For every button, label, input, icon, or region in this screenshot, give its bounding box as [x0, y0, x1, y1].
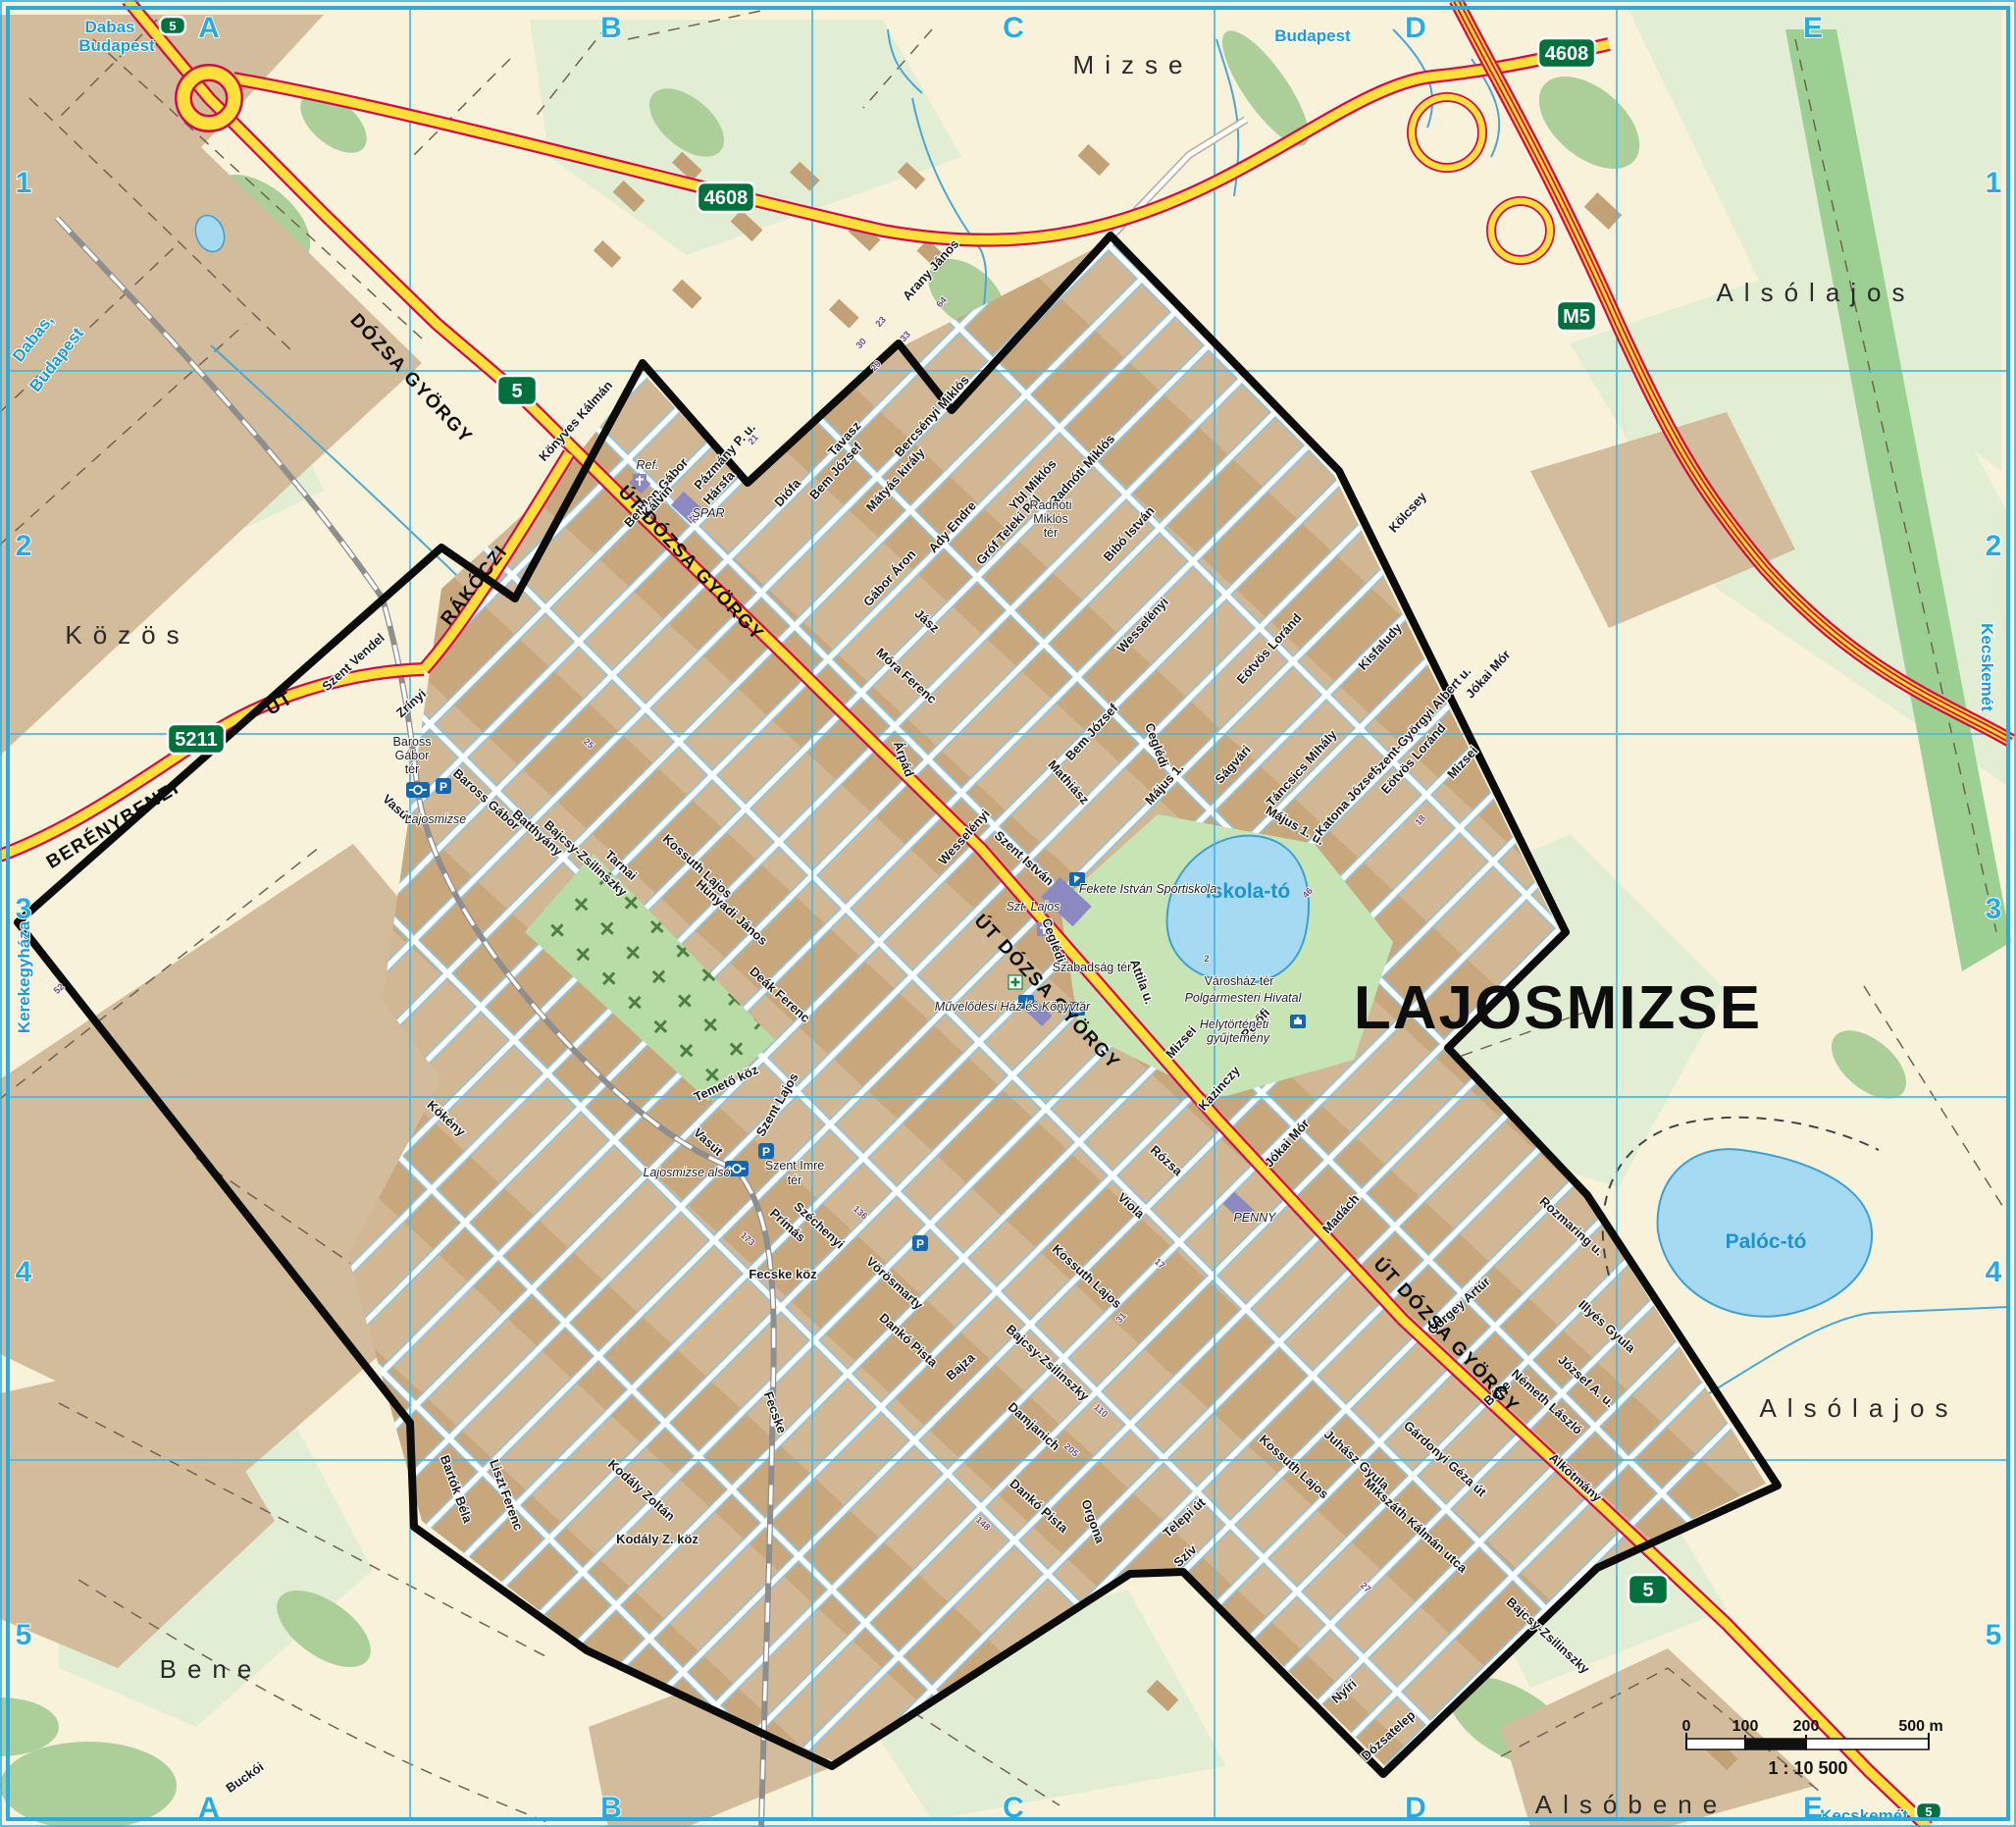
- area-label: Mizse: [1073, 50, 1194, 79]
- svg-text:5: 5: [1642, 1580, 1653, 1601]
- water-label: Iskola-tó: [1206, 880, 1290, 903]
- road-shield: 5211: [168, 724, 225, 754]
- svg-text:M5: M5: [1563, 306, 1590, 328]
- church-icon: [633, 474, 646, 488]
- poi-label: tér: [788, 1174, 802, 1187]
- area-label: Alsóbene: [1535, 1790, 1728, 1819]
- direction-label: Kecskemét: [1820, 1806, 1908, 1825]
- poi-label: Fekete István Sportiskola: [1079, 882, 1216, 896]
- svg-text:4608: 4608: [1545, 43, 1589, 65]
- grid-row-label: 4: [16, 1256, 32, 1288]
- area-label: Közös: [65, 620, 189, 650]
- poi-label: Művelődési Ház és Könyvtár: [935, 1000, 1091, 1014]
- poi-label: Szt. Lajos: [1007, 900, 1060, 913]
- direction-label: Budapest: [1274, 26, 1351, 45]
- scale-tick: 200: [1793, 1718, 1820, 1735]
- station-icon: [406, 782, 430, 798]
- grid-row-label: 5: [1986, 1619, 2002, 1651]
- road-shield: 5: [160, 17, 185, 34]
- direction-label: Dabas: [84, 18, 134, 36]
- poi-label: Lajosmizse alsó: [644, 1166, 731, 1179]
- poi-label: Baross: [393, 735, 432, 749]
- poi-label: Radnóti: [1029, 498, 1071, 512]
- svg-text:5: 5: [511, 381, 522, 402]
- town-title: LAJOSMIZSE: [1354, 974, 1762, 1042]
- scale-ratio: 1 : 10 500: [1768, 1758, 1847, 1778]
- poi-label: SPAR: [692, 506, 724, 520]
- parking-icon: P: [912, 1235, 928, 1251]
- area-label: Bene: [160, 1654, 263, 1684]
- svg-text:P: P: [762, 1145, 770, 1159]
- poi-label: Polgármesteri Hivatal: [1185, 991, 1303, 1005]
- poi-label: Lajosmizse: [405, 812, 467, 826]
- scale-tick: 500 m: [1898, 1718, 1942, 1735]
- poi-label: Ref.: [637, 458, 659, 472]
- scale-tick: 0: [1682, 1718, 1691, 1735]
- grid-row-label: 4: [1986, 1256, 2002, 1288]
- grid-row-label: 3: [1986, 893, 2002, 925]
- grid-row-label: 1: [1986, 167, 2002, 199]
- road-shield: 4608: [698, 183, 754, 212]
- grid-col-label: D: [1405, 12, 1426, 44]
- poi-label: Városház tér: [1205, 974, 1274, 988]
- map-canvas: PPPi Arany JánosKönyves KálmánBethlen Gá…: [0, 0, 2016, 1827]
- direction-label: Kecskemét: [1978, 623, 1996, 711]
- poi-label: Szent Imre: [765, 1159, 824, 1173]
- grid-row-label: 5: [16, 1619, 32, 1651]
- svg-text:5: 5: [1925, 1804, 1932, 1819]
- grid-row-label: 3: [16, 893, 32, 925]
- road-shield: M5: [1557, 301, 1596, 331]
- parking-icon: P: [758, 1143, 774, 1159]
- poi-label: Helytörténeti: [1200, 1018, 1269, 1031]
- grid-col-label: E: [1803, 12, 1823, 44]
- poi-label: Szabadság tér: [1053, 961, 1132, 974]
- poi-label: gyűjtemény: [1207, 1031, 1270, 1045]
- grid-row-label: 2: [16, 530, 32, 562]
- poi-label: tér: [1044, 526, 1059, 540]
- svg-text:5211: 5211: [175, 729, 217, 751]
- grid-col-label: A: [198, 12, 220, 44]
- scale-tick: 100: [1732, 1718, 1759, 1735]
- grid-row-label: 1: [16, 167, 32, 199]
- water-label: Palóc-tó: [1726, 1230, 1807, 1253]
- museum-icon: [1290, 1015, 1306, 1028]
- parking-icon: P: [436, 778, 451, 794]
- street-label: Fecske köz: [749, 1267, 817, 1281]
- area-label: Alsólajos: [1759, 1393, 1958, 1423]
- svg-text:5: 5: [169, 19, 176, 33]
- svg-text:P: P: [916, 1237, 924, 1251]
- poi-label: tér: [405, 762, 420, 776]
- road-shield: 5: [1628, 1575, 1668, 1604]
- area-label: Alsólajos: [1716, 278, 1915, 307]
- direction-label: Budapest: [78, 36, 155, 55]
- direction-label: Kerekegyháza: [15, 920, 33, 1033]
- house-number: 2: [1204, 954, 1209, 965]
- grid-row-label: 2: [1986, 530, 2002, 562]
- street-label: Kodály Z. köz: [616, 1532, 698, 1546]
- poi-label: Gábor: [395, 749, 430, 762]
- poi-label: PENNY: [1233, 1211, 1277, 1225]
- city-map: PPPi Arany JánosKönyves KálmánBethlen Gá…: [0, 0, 2016, 1827]
- poi-label: Miklós: [1033, 512, 1067, 526]
- grid-col-label: C: [1003, 12, 1024, 44]
- svg-text:P: P: [439, 780, 447, 794]
- road-shield: 4608: [1538, 38, 1595, 68]
- svg-text:4608: 4608: [704, 187, 749, 209]
- road-shield: 5: [497, 376, 537, 405]
- grid-col-label: B: [600, 12, 622, 44]
